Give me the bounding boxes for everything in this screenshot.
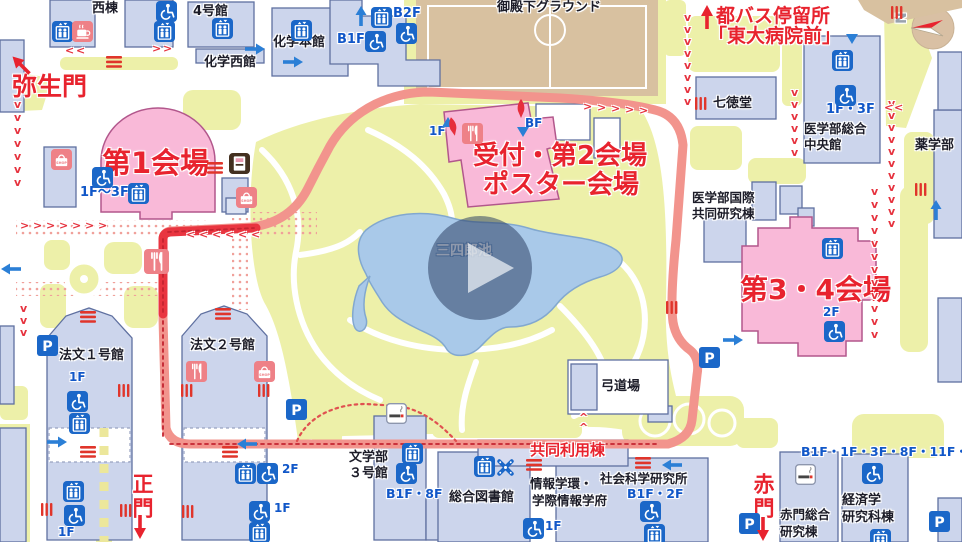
route-chevron-icon: < bbox=[225, 229, 234, 240]
akamon-bldg-label2: 研究棟 bbox=[780, 526, 818, 539]
route-chevron-icon: < bbox=[251, 229, 260, 240]
route-chevron-icon: ^ bbox=[579, 422, 588, 433]
econ-label2: 研究科棟 bbox=[842, 511, 894, 524]
elevator-icon bbox=[249, 522, 270, 542]
floor-1f-library: 1F bbox=[545, 520, 562, 532]
route-chevron-icon: v bbox=[684, 24, 691, 35]
redbarsh-icon bbox=[635, 457, 651, 469]
route-chevron-icon: v bbox=[871, 225, 878, 236]
bus-stop-line2: 「東大病院前」 bbox=[708, 27, 841, 46]
route-chevron-icon: v bbox=[888, 182, 895, 193]
elevator-icon bbox=[63, 481, 84, 502]
route-chevron-icon: v bbox=[871, 264, 878, 275]
redbarsv-icon bbox=[181, 384, 193, 397]
elevator-icon bbox=[128, 183, 149, 204]
route-arrow-icon bbox=[515, 99, 527, 119]
floor-b1f-2f: B1F・2F bbox=[627, 488, 684, 501]
route-chevron-icon: > bbox=[583, 101, 592, 112]
elevator-icon bbox=[235, 463, 256, 484]
route-chevron-icon: v bbox=[871, 212, 878, 223]
route-chevron-icon: v bbox=[871, 199, 878, 210]
bungakubu-label2: ３号館 bbox=[349, 467, 388, 480]
floor-b1f: B1F bbox=[337, 33, 365, 46]
reception-venue2-label: 受付・第2会場 bbox=[473, 143, 647, 169]
svg-text:P: P bbox=[934, 515, 944, 531]
shop-icon: SHOP bbox=[236, 187, 257, 208]
elevator-icon bbox=[371, 7, 392, 28]
route-arrow-icon bbox=[445, 116, 461, 138]
route-chevron-icon: v bbox=[14, 151, 21, 162]
gate-arrow-icon bbox=[700, 4, 714, 30]
parking-icon: P bbox=[699, 347, 720, 368]
parking-icon: P bbox=[37, 335, 58, 356]
wheelchair-icon bbox=[365, 31, 386, 52]
route-chevron-icon: v bbox=[684, 60, 691, 71]
elevator-icon bbox=[291, 20, 312, 41]
svg-text:SHOP: SHOP bbox=[259, 373, 270, 377]
restaurant-icon bbox=[144, 249, 169, 274]
venue1-label: 第1会場 bbox=[102, 149, 209, 178]
wheelchair-icon bbox=[156, 1, 177, 22]
svg-text:P: P bbox=[42, 339, 52, 355]
route-chevron-icon: < bbox=[76, 45, 85, 56]
restaurant-icon bbox=[462, 123, 483, 144]
route-chevron-icon: > bbox=[639, 105, 648, 116]
wheelchair-icon bbox=[396, 23, 417, 44]
route-chevron-icon: v bbox=[791, 87, 798, 98]
route-chevron-icon: < bbox=[212, 229, 221, 240]
svg-text:P: P bbox=[704, 351, 714, 367]
route-chevron-icon: v bbox=[14, 138, 21, 149]
hobun1-label: 法文１号館 bbox=[59, 349, 124, 362]
route-chevron-icon: v bbox=[14, 112, 21, 123]
redbarsv-icon bbox=[41, 503, 53, 516]
ground-label: 御殿下グラウンド bbox=[497, 1, 601, 14]
floor-1f-hobun1-low: 1F bbox=[58, 526, 75, 538]
redbarsh-icon bbox=[80, 446, 96, 458]
route-chevron-icon: v bbox=[791, 147, 798, 158]
joho-label2: 学際情報学府 bbox=[532, 495, 607, 508]
redbarsh-icon bbox=[215, 308, 231, 320]
campus-map: 弥生門第1会場受付・第2会場ポスター会場第3・4会場共同利用棟正門赤門都バス停留… bbox=[0, 0, 962, 542]
direction-arrow-icon bbox=[282, 56, 304, 68]
floor-2f-hobun2: 2F bbox=[282, 463, 299, 475]
med-central-label1: 医学部総合 bbox=[804, 123, 867, 136]
route-chevron-icon: > bbox=[46, 220, 55, 231]
route-chevron-icon: v bbox=[791, 111, 798, 122]
svg-text:P: P bbox=[291, 403, 301, 419]
redbarsh-icon bbox=[106, 56, 122, 68]
direction-arrow-icon bbox=[517, 127, 529, 137]
direction-arrow-icon bbox=[722, 334, 744, 346]
route-chevron-icon: v bbox=[684, 72, 691, 83]
route-chevron-icon: > bbox=[163, 43, 172, 54]
bungakubu-label1: 文学部 bbox=[349, 451, 388, 464]
route-chevron-icon: < bbox=[186, 229, 195, 240]
library-label: 総合図書館 bbox=[449, 491, 514, 504]
route-chevron-icon: v bbox=[684, 48, 691, 59]
floor-b2f: B2F bbox=[393, 7, 421, 20]
route-chevron-icon: v bbox=[871, 303, 878, 314]
route-chevron-icon: v bbox=[871, 329, 878, 340]
smoking-icon bbox=[386, 403, 407, 424]
med-intl-label1: 医学部国際 bbox=[692, 192, 755, 205]
elevator-icon bbox=[52, 21, 73, 42]
akamon-bldg-label1: 赤門総合 bbox=[780, 509, 830, 522]
wheelchair-icon bbox=[249, 501, 270, 522]
direction-arrow-icon bbox=[661, 459, 683, 471]
elevator-icon bbox=[402, 443, 423, 464]
redbarsh-icon bbox=[207, 162, 223, 174]
route-chevron-icon: v bbox=[791, 135, 798, 146]
west-bldg-label: 西棟 bbox=[92, 2, 118, 15]
route-chevron-icon: v bbox=[871, 277, 878, 288]
gate-arrow-icon bbox=[133, 514, 147, 540]
wheelchair-icon bbox=[640, 501, 661, 522]
elevator-icon bbox=[154, 21, 175, 42]
elevator-icon bbox=[474, 456, 495, 477]
atm-icon bbox=[229, 153, 250, 174]
gate-arrow-icon bbox=[756, 516, 770, 542]
shop-icon: SHOP bbox=[254, 361, 275, 382]
route-chevron-icon: > bbox=[20, 220, 29, 231]
wheelchair-icon bbox=[824, 321, 845, 342]
direction-arrow-icon bbox=[930, 199, 942, 221]
elevator-icon bbox=[644, 524, 665, 542]
floor-1f-hobun1: 1F bbox=[69, 371, 86, 383]
hobun2-label: 法文２号館 bbox=[190, 339, 255, 352]
joho-label1: 情報学環・ bbox=[530, 478, 593, 491]
route-chevron-icon: v bbox=[14, 99, 21, 110]
route-chevron-icon: v bbox=[871, 316, 878, 327]
route-chevron-icon: v bbox=[20, 315, 27, 326]
redbarsv-icon bbox=[891, 6, 903, 19]
route-chevron-icon: v bbox=[791, 99, 798, 110]
route-chevron-icon: v bbox=[20, 303, 27, 314]
kyodo-riyoto-label: 共同利用棟 bbox=[530, 443, 605, 458]
route-chevron-icon: v bbox=[871, 251, 878, 262]
route-chevron-icon: v bbox=[14, 177, 21, 188]
wheelchair-icon bbox=[67, 391, 88, 412]
route-chevron-icon: > bbox=[72, 220, 81, 231]
redbarsv-icon bbox=[120, 504, 132, 517]
route-chevron-icon: > bbox=[85, 220, 94, 231]
route-chevron-icon: v bbox=[684, 36, 691, 47]
direction-arrow-icon bbox=[0, 263, 22, 275]
direction-arrow-icon bbox=[236, 438, 258, 450]
route-chevron-icon: > bbox=[98, 220, 107, 231]
redbarsv-icon bbox=[695, 97, 707, 110]
route-chevron-icon: < bbox=[884, 102, 893, 113]
route-chevron-icon: v bbox=[14, 164, 21, 175]
asterisk-icon bbox=[495, 457, 516, 478]
route-chevron-icon: v bbox=[888, 206, 895, 217]
parking-icon: P bbox=[286, 399, 307, 420]
redbarsv-icon bbox=[666, 301, 678, 314]
route-chevron-icon: v bbox=[888, 194, 895, 205]
med-intl-label2: 共同研究棟 bbox=[692, 208, 755, 221]
route-chevron-icon: > bbox=[152, 43, 161, 54]
play-icon bbox=[468, 243, 514, 293]
route-chevron-icon: v bbox=[871, 238, 878, 249]
redbarsv-icon bbox=[915, 183, 927, 196]
route-chevron-icon: v bbox=[871, 290, 878, 301]
wheelchair-icon bbox=[523, 518, 544, 539]
redbarsv-icon bbox=[258, 384, 270, 397]
svg-text:P: P bbox=[744, 517, 754, 533]
wheelchair-icon bbox=[396, 463, 417, 484]
floor-1f-hobun2: 1F bbox=[274, 502, 291, 514]
direction-arrow-icon bbox=[355, 5, 367, 27]
shop-icon: SHOP bbox=[51, 149, 72, 170]
elevator-icon bbox=[870, 529, 891, 542]
direction-arrow-icon bbox=[46, 436, 68, 448]
route-chevron-icon: < bbox=[65, 45, 74, 56]
route-chevron-icon: v bbox=[20, 327, 27, 338]
route-chevron-icon: v bbox=[888, 146, 895, 157]
floor-b1f-8f: B1F・8F bbox=[386, 488, 443, 501]
parking-icon: P bbox=[929, 511, 950, 532]
route-chevron-icon: v bbox=[791, 123, 798, 134]
med-central-label2: 中央館 bbox=[804, 139, 842, 152]
route-chevron-icon: v bbox=[888, 158, 895, 169]
route-chevron-icon: v bbox=[871, 186, 878, 197]
route-chevron-icon: v bbox=[684, 84, 691, 95]
route-chevron-icon: > bbox=[625, 104, 634, 115]
coffee-icon bbox=[72, 21, 93, 42]
restaurant-icon bbox=[186, 361, 207, 382]
redbarsv-icon bbox=[118, 384, 130, 397]
wheelchair-icon bbox=[835, 85, 856, 106]
poster-venue-label: ポスター会場 bbox=[483, 172, 639, 198]
route-chevron-icon: > bbox=[611, 103, 620, 114]
wheelchair-icon bbox=[92, 167, 113, 188]
kyudo-label: 弓道場 bbox=[601, 380, 640, 393]
redbarsh-icon bbox=[526, 459, 542, 471]
route-chevron-icon: > bbox=[59, 220, 68, 231]
route-chevron-icon: v bbox=[888, 170, 895, 181]
route-chevron-icon: < bbox=[238, 229, 247, 240]
route-chevron-icon: v bbox=[888, 218, 895, 229]
route-chevron-icon: < bbox=[199, 229, 208, 240]
elevator-icon bbox=[822, 238, 843, 259]
route-chevron-icon: v bbox=[684, 96, 691, 107]
route-chevron-icon: v bbox=[14, 125, 21, 136]
svg-text:SHOP: SHOP bbox=[241, 199, 252, 203]
route-chevron-icon: v bbox=[684, 12, 691, 23]
redbarsh-icon bbox=[80, 311, 96, 323]
elevator-icon bbox=[212, 18, 233, 39]
shaken-label: 社会科学研究所 bbox=[600, 473, 688, 486]
wheelchair-icon bbox=[64, 505, 85, 526]
pharmacy-label: 薬学部 bbox=[915, 139, 954, 152]
wheelchair-icon bbox=[862, 463, 883, 484]
route-chevron-icon: > bbox=[33, 220, 42, 231]
direction-arrow-icon bbox=[244, 43, 266, 55]
wheelchair-icon bbox=[257, 463, 278, 484]
route-chevron-icon: v bbox=[888, 134, 895, 145]
redbarsv-icon bbox=[182, 505, 194, 518]
chem-west-label: 化学西館 bbox=[204, 56, 256, 69]
elevator-icon bbox=[69, 413, 90, 434]
route-chevron-icon: < bbox=[894, 102, 903, 113]
svg-text:SHOP: SHOP bbox=[56, 161, 67, 165]
floor-econ-list: B1F・1F・3F・8F・11F・14F bbox=[801, 446, 962, 459]
bldg4-label: 4号館 bbox=[193, 5, 228, 18]
venue3-4-label: 第3・4会場 bbox=[740, 276, 891, 304]
floor-2f-venue34: 2F bbox=[823, 306, 840, 318]
route-chevron-icon: v bbox=[888, 122, 895, 133]
smoking-icon bbox=[795, 464, 816, 485]
econ-label1: 経済学 bbox=[842, 494, 881, 507]
bus-stop-line1: 都バス停留所 bbox=[716, 7, 830, 26]
video-play-button[interactable] bbox=[428, 216, 532, 320]
shichitokudo-label: 七徳堂 bbox=[713, 97, 752, 110]
route-chevron-icon: > bbox=[597, 102, 606, 113]
elevator-icon bbox=[832, 50, 853, 71]
direction-arrow-icon bbox=[846, 34, 858, 44]
